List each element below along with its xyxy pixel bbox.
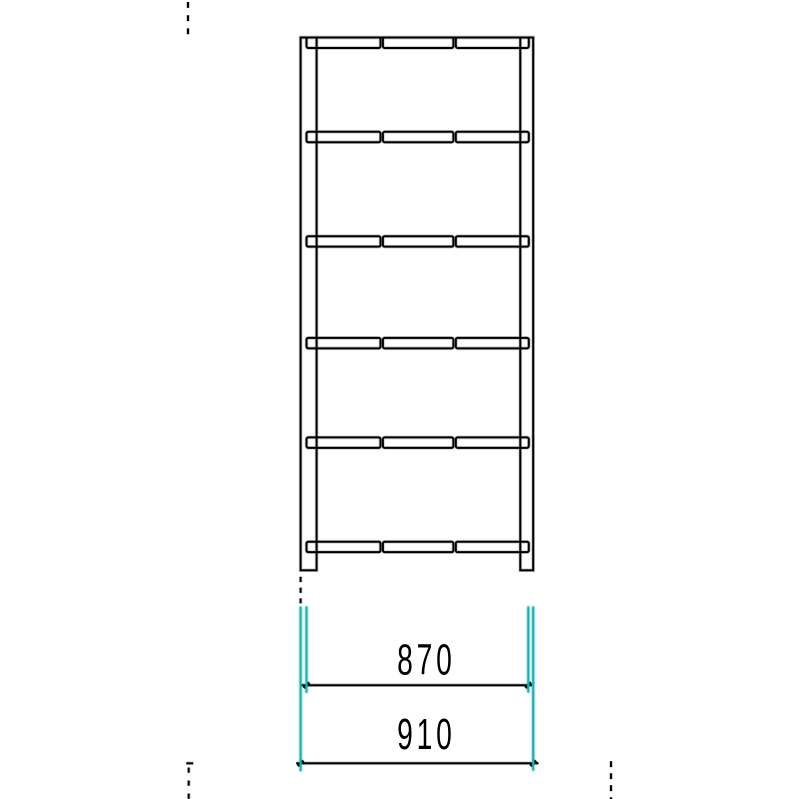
svg-text:910: 910 — [397, 710, 455, 759]
svg-text:870: 870 — [397, 635, 455, 684]
